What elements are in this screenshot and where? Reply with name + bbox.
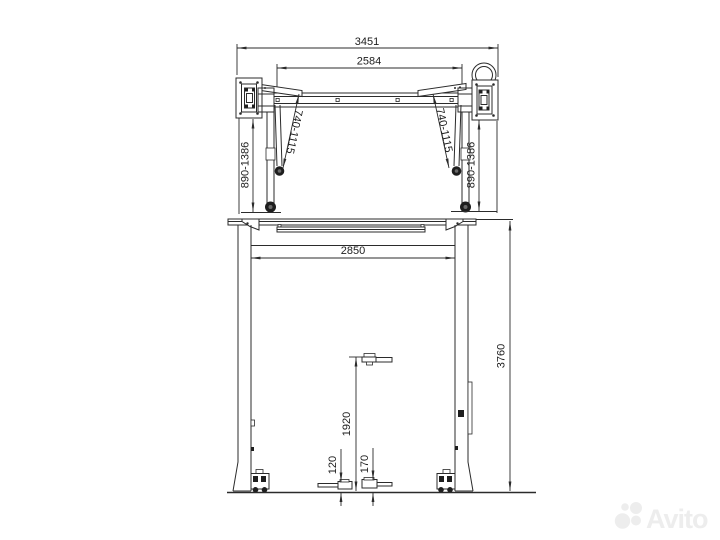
dim-label-inner-width: 2850 [341,245,365,257]
anchor-bolt [492,114,495,117]
arm-bar [377,483,392,487]
anchor-bolt [239,81,242,84]
slider-block [252,89,255,92]
pad-body [362,480,377,489]
arm-bar [376,358,392,363]
anchor-bolt [256,81,259,84]
anchor-bolt [256,112,259,115]
dim-label-arm-span-right: 890-1386 [466,142,478,189]
carriage-block [261,476,266,482]
carriage-block [447,476,452,482]
arm-pad-center [464,205,468,209]
dim-label-lift-height: 1920 [341,412,353,436]
crossbeam-hole [450,98,453,101]
dim-label-pad-min-height-right: 170 [359,455,371,473]
slider-block [245,89,248,92]
watermark-logo-dot [630,502,642,514]
bolt-dot [246,222,248,224]
dim-label-overall-height: 3760 [496,344,508,368]
carriage-block [253,476,258,482]
slider-block [252,105,255,108]
arm-pad-center [455,169,459,173]
carriage-top [443,470,450,474]
lock-lever-cover [468,382,472,434]
anchor-bolt [492,83,495,86]
arm-pad-center [278,169,282,173]
lock-block [455,446,458,450]
anchor-bolt [239,112,242,115]
watermark-logo-dot [621,503,629,511]
watermark-logo-dot [631,516,641,526]
arm-bar [318,484,338,488]
carriage-block [439,476,444,482]
lock-block [251,447,254,451]
pad-body [338,482,352,490]
bolt-dot [456,222,458,224]
crossbeam-hole [396,98,399,101]
arm-pad-center [269,205,273,209]
watermark-logo-dot [615,513,630,528]
arm-joint [266,148,275,160]
slider-block [245,105,248,108]
lock-block [458,410,464,417]
technical-drawing: 3451 2584 [0,0,720,540]
pad-plate [364,478,374,481]
slider-block [487,91,490,94]
dim-label-pad-min-height-left: 120 [327,456,339,474]
crossbeam-hole [276,98,279,101]
anchor-bolt [475,114,478,117]
slider-block [480,107,483,110]
crossbeam-hole [336,98,339,101]
slider-block [487,107,490,110]
pad-plate [364,354,375,358]
carriage-top [256,470,263,474]
anchor-bolt [475,83,478,86]
dim-label-overall-width: 3451 [355,36,379,48]
pad-stem [367,362,373,365]
lock-tab [251,420,255,426]
dim-label-arm-span-left: 890-1386 [240,142,252,189]
dim-label-beam-width: 2584 [357,56,381,68]
watermark-text: Avito [646,504,708,534]
slider-block [480,91,483,94]
bolt-dot [454,87,456,89]
pad-body [362,357,376,362]
